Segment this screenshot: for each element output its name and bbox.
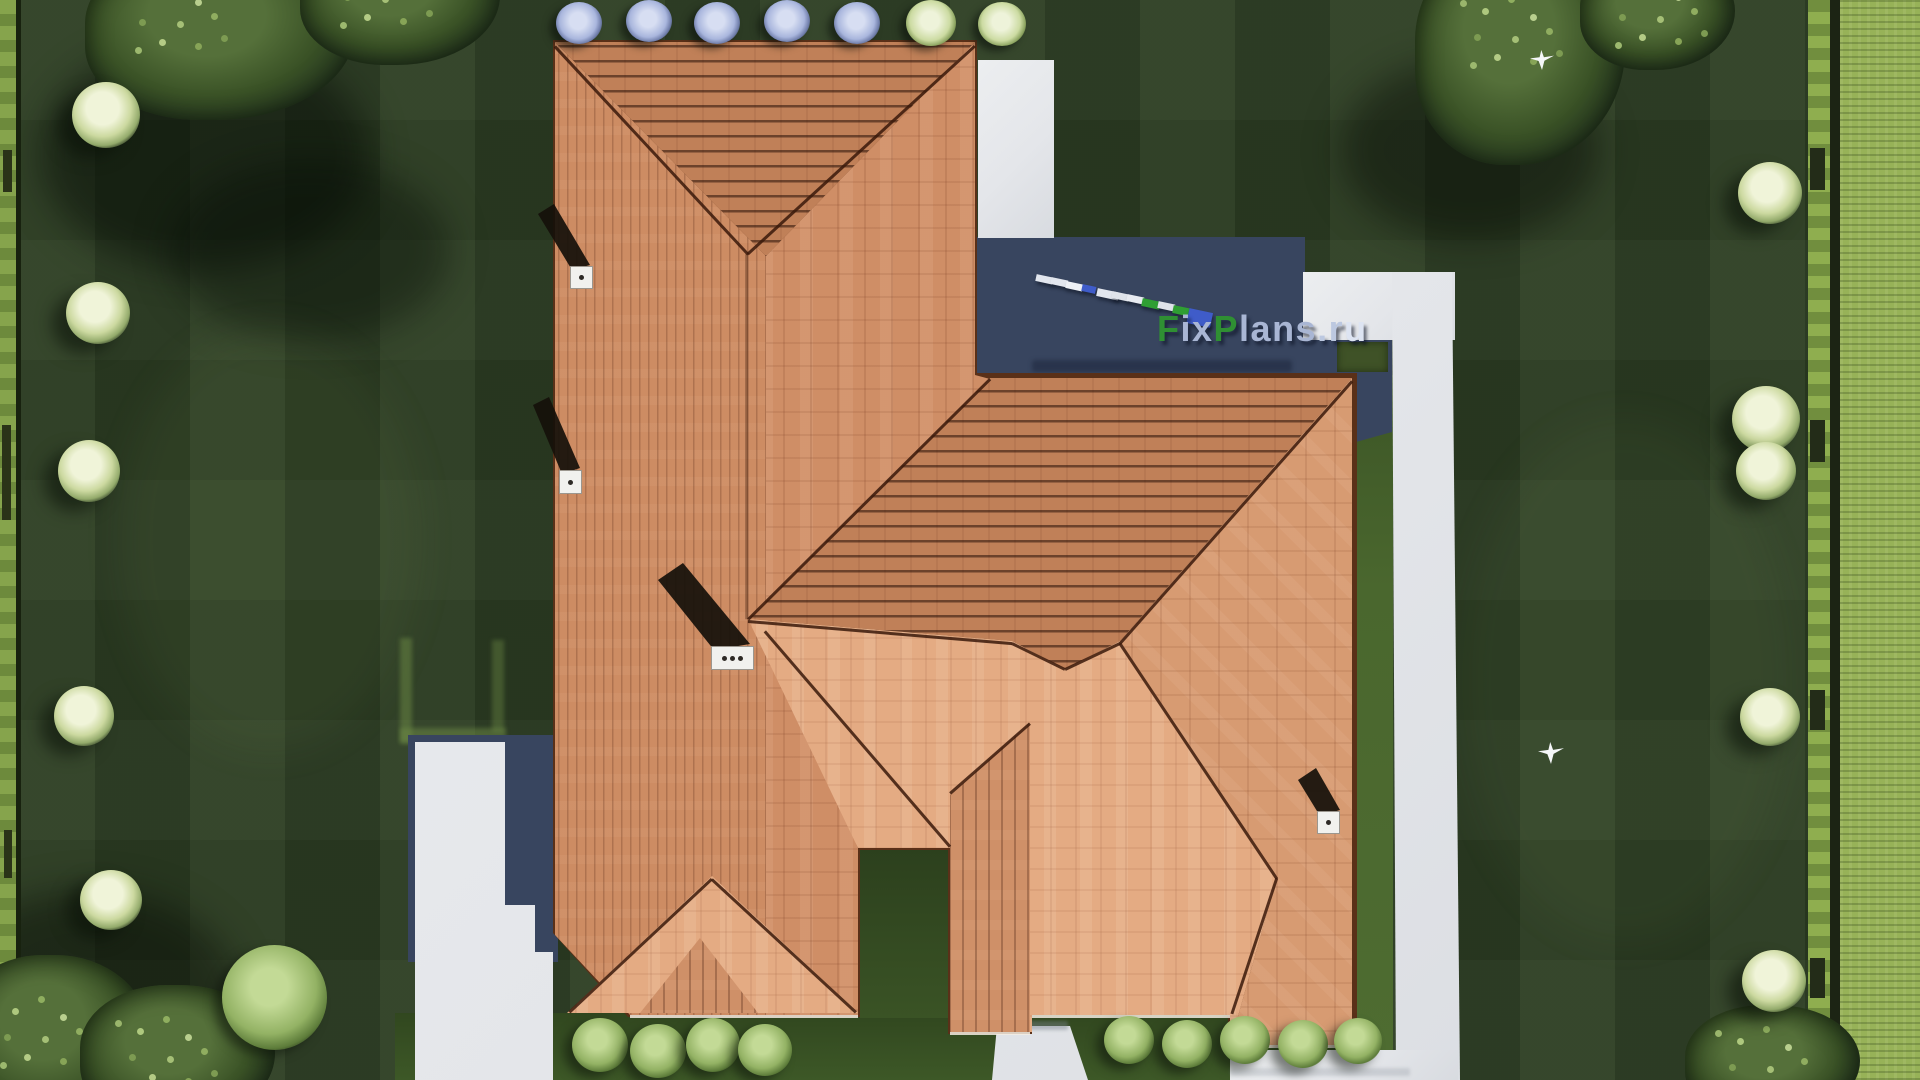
bush [630, 1024, 686, 1078]
bush [1162, 1020, 1212, 1068]
flower-bush-white [906, 0, 956, 46]
flower-bush [556, 2, 602, 44]
lawn-highlight [1460, 420, 1790, 940]
fence-post [1810, 958, 1825, 998]
bush [1104, 1016, 1154, 1064]
bush-pale [1740, 688, 1800, 746]
fence-mark [3, 150, 12, 192]
eave-fascia [950, 1032, 1030, 1035]
ridge-line [746, 254, 749, 619]
bush-pale [72, 82, 140, 148]
lawn-strip-east [1356, 375, 1393, 1080]
fence-mark [2, 425, 11, 520]
bush [1220, 1016, 1270, 1064]
watermark-segment: lans [1239, 308, 1317, 349]
chimney-2 [559, 470, 582, 494]
bush [572, 1018, 628, 1072]
watermark-segment: .r [1317, 308, 1344, 349]
site-plan-render: FixPlans.ru [0, 0, 1920, 1080]
watermark-segment: F [1157, 308, 1181, 349]
flue [722, 656, 727, 661]
bush-pale [1736, 442, 1796, 500]
flower-bush [834, 2, 880, 44]
bush [1334, 1018, 1382, 1064]
eave-fascia [630, 1015, 858, 1018]
bush-pale [1742, 950, 1806, 1012]
tree-shadow [170, 160, 450, 340]
flower-bush [694, 2, 740, 44]
watermark-text: FixPlans.ru [1157, 308, 1368, 350]
bush [1278, 1020, 1328, 1068]
watermark-segment: P [1214, 308, 1240, 349]
lawn-highlight [120, 330, 420, 750]
bush [222, 945, 327, 1050]
chimney-1 [570, 266, 593, 289]
walkway-top [978, 60, 1054, 238]
bush [686, 1018, 740, 1072]
flower-bush-white [978, 2, 1026, 46]
fence-right [1830, 0, 1840, 1080]
watermark-segment: u [1344, 308, 1368, 349]
bush-pale [80, 870, 142, 930]
ghost-watermark-row [1032, 360, 1292, 372]
bush-pale [66, 282, 130, 344]
flue [579, 275, 584, 280]
flue [1326, 820, 1331, 825]
ghost-path-text [1230, 1068, 1410, 1076]
bush-pale [1738, 162, 1802, 224]
flue [568, 480, 573, 485]
fence-mark [4, 830, 12, 878]
watermark-segment: ix [1181, 308, 1214, 349]
chimney-4 [1317, 811, 1340, 834]
bush-pale [58, 440, 120, 502]
fence-post [1810, 690, 1825, 730]
meadow-right [1840, 0, 1920, 1080]
flower-bush [764, 0, 810, 42]
hedge-left-shade [16, 0, 21, 1080]
lawn-edge-highlight [492, 640, 504, 732]
flower-bush [626, 0, 672, 42]
flue [730, 656, 735, 661]
chimney-3 [711, 646, 754, 670]
fence-post [1810, 420, 1825, 462]
bush [738, 1024, 792, 1076]
bush-pale [54, 686, 114, 746]
flue [738, 656, 743, 661]
fence-post [1810, 148, 1825, 190]
courtyard-lawn [860, 848, 950, 1018]
